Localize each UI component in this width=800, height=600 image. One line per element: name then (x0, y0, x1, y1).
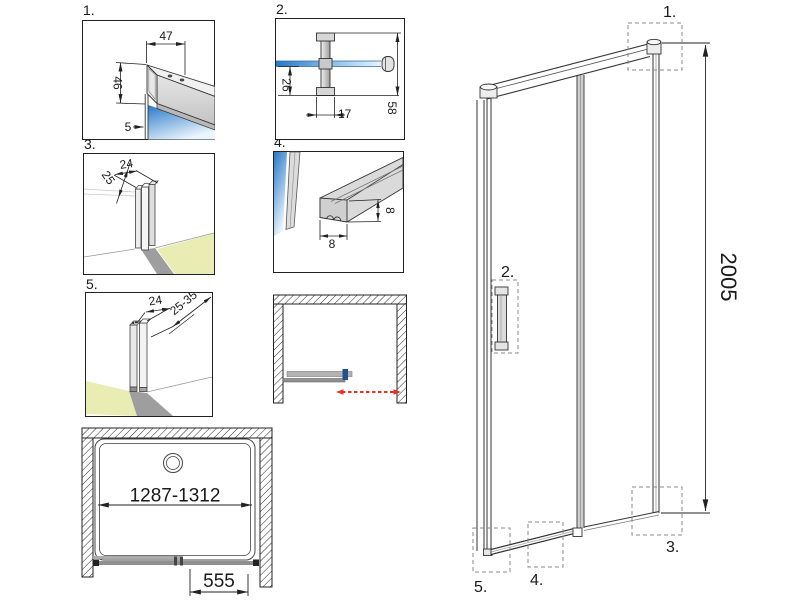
plan-view-sliding-direction (272, 288, 408, 408)
dim-seal-width: 8 (329, 237, 336, 251)
door-line (93, 556, 259, 566)
dim-glass-offset: 26 (280, 78, 294, 92)
dim-profile-width: 24 (148, 293, 164, 309)
dim-tray-width-range: 1287-1312 (130, 486, 221, 507)
door-elevation-view: 2005 1. 2. 3. 4. 5. (460, 0, 800, 600)
right-rail-cap (647, 39, 661, 54)
callout-label-5: 5. (474, 579, 487, 596)
callout-box-4 (528, 522, 563, 567)
callout-label-3: 3. (666, 539, 679, 556)
dim-door-height: 2005 (716, 253, 741, 302)
screw-icon (168, 75, 173, 78)
detail-2-handle-section: 26 17 58 (275, 18, 405, 140)
door-leading-stile (477, 98, 492, 556)
door-handle (495, 287, 508, 350)
door-panels-plan (283, 369, 352, 382)
walls (274, 295, 407, 403)
drain-icon (167, 457, 180, 470)
bottom-seal (491, 512, 659, 555)
handle-plan-mark (343, 369, 349, 380)
dim-profile-width: 24 (119, 156, 135, 172)
dim-handle-width: 17 (338, 107, 352, 121)
wall-profile-bars (136, 181, 159, 250)
screw-icon (132, 322, 134, 324)
detail-3-wall-profile: 24 25 (83, 153, 215, 275)
dim-entry-width: 555 (203, 571, 235, 592)
dim-handle-total: 58 (385, 101, 399, 115)
detail-2-number: 2. (276, 2, 288, 16)
dim-rail-height: 46 (111, 76, 125, 90)
slide-direction-arrow (336, 389, 401, 394)
callout-label-2: 2. (501, 264, 514, 281)
detail-1-top-rail-section: 47 46 5 (82, 20, 215, 140)
left-rail-cap (480, 84, 497, 98)
detail-5-number: 5. (86, 277, 98, 291)
screw-icon (180, 79, 185, 82)
detail-5-adjustment-profile: 24 25-35 (85, 292, 213, 417)
tray-top-view: 1287-1312 555 (78, 425, 278, 600)
dim-rail-width: 47 (159, 29, 173, 43)
height-dimension (661, 43, 710, 513)
detail-2-frame (276, 19, 405, 140)
callout-label-4: 4. (530, 572, 543, 589)
technical-drawing-sheet: 1. 2. 3. 4. 5. (0, 0, 800, 600)
handle-plan-mark (174, 557, 177, 566)
dim-seal-height: 8 (383, 207, 397, 214)
callout-label-1: 1. (663, 4, 676, 21)
screw-icon (135, 321, 137, 323)
top-rail (487, 44, 650, 100)
end-knob (382, 57, 394, 72)
detail-4-bottom-seal: 8 8 (273, 151, 404, 273)
wall-profile-post (653, 54, 659, 513)
sliding-panel-stile (577, 75, 584, 528)
handle-plan-mark (180, 557, 183, 566)
callout-box-3 (632, 487, 682, 535)
dim-glass-thickness: 5 (125, 120, 132, 134)
detail-1-number: 1. (83, 3, 95, 17)
